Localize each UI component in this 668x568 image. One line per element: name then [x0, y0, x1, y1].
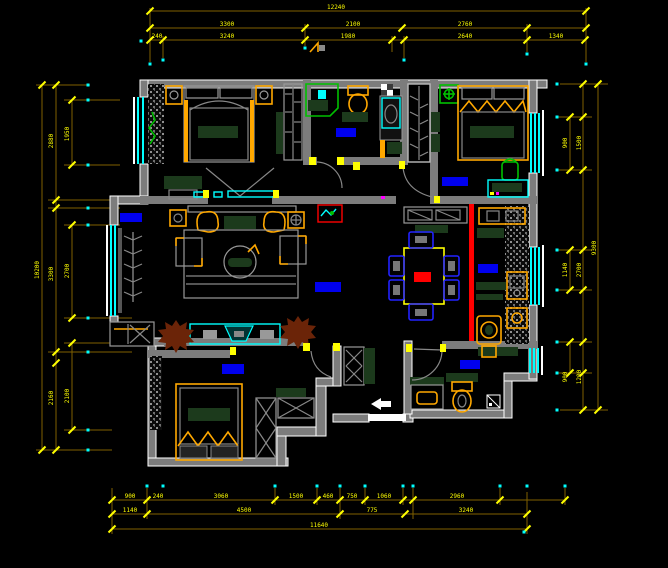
bay-window-living — [106, 225, 122, 316]
door-jamb-marker — [203, 190, 209, 198]
room-bathroom-bottom — [406, 344, 518, 412]
section-marker-icon — [310, 43, 325, 52]
feature-wall-red — [469, 204, 474, 341]
room-bathroom-top — [306, 84, 402, 199]
door-jamb-marker — [434, 196, 440, 203]
dim-label: 2960 — [450, 493, 465, 500]
door-jamb-marker — [399, 161, 405, 169]
door-jamb-marker — [406, 344, 412, 352]
dim-label: 4500 — [237, 507, 252, 514]
room-bedroom-top-right — [431, 85, 528, 197]
double-bed — [176, 384, 242, 460]
room-label-marker — [478, 264, 498, 273]
door-jamb-marker — [230, 347, 236, 355]
dim-label: 750 — [347, 493, 358, 500]
room-label-marker — [460, 360, 480, 369]
dim-label: 1140 — [123, 507, 138, 514]
desk-chair — [502, 159, 518, 180]
side-table — [288, 212, 304, 228]
kitchen-cabinet — [476, 294, 503, 300]
aquarium-box — [318, 205, 342, 222]
door-jamb-marker — [303, 343, 310, 351]
sofa-set — [170, 206, 306, 298]
toilet — [452, 382, 472, 412]
dresser — [164, 176, 202, 189]
window-bedroom-tr — [530, 110, 544, 176]
dim-label: 900 — [562, 137, 569, 148]
hall-cabinet — [110, 322, 154, 346]
floor-drain — [487, 395, 500, 408]
dimension-block-bottom: 900 240 3060 1500 460 750 1060 2960 1140… — [109, 485, 569, 535]
dim-label: 2160 — [48, 390, 55, 405]
washbasin — [411, 385, 443, 409]
shower-head — [318, 90, 326, 99]
room-bedroom-top-left — [149, 84, 302, 199]
room-label-marker — [222, 364, 244, 374]
room-label-marker — [442, 177, 468, 186]
dim-label: 1340 — [549, 33, 564, 40]
kitchen-cabinet — [477, 228, 504, 238]
wardrobe — [276, 84, 302, 160]
dim-label: 12240 — [327, 4, 345, 11]
armchair — [176, 238, 202, 266]
window-sill-checker — [381, 84, 393, 96]
dim-label: 775 — [367, 507, 378, 514]
dim-label: 2760 — [458, 21, 473, 28]
dim-label: 900 — [125, 493, 136, 500]
window-kitchen — [530, 245, 544, 307]
closet-shelf — [431, 112, 440, 132]
dimension-block-left: 1950 2700 2100 2880 3300 2160 10200 — [34, 82, 132, 454]
dim-label: 1980 — [341, 33, 356, 40]
closet-shelf — [431, 134, 440, 152]
door-jamb-marker — [333, 343, 340, 351]
door-jamb-marker — [440, 344, 446, 352]
dim-label: 3240 — [459, 507, 474, 514]
dim-label: 2100 — [346, 21, 361, 28]
door-jamb-marker — [353, 162, 360, 170]
dim-label: 1140 — [562, 262, 569, 277]
side-table — [170, 210, 186, 226]
kitchen-cabinet — [476, 282, 506, 290]
room-living — [110, 205, 342, 353]
dim-label: 240 — [152, 33, 163, 40]
dim-label: 2700 — [64, 263, 71, 278]
dim-label: 3300 — [220, 21, 235, 28]
washbasin-cabinet — [380, 96, 402, 199]
dim-label: 2880 — [48, 133, 55, 148]
dim-label: 9300 — [591, 240, 598, 255]
door-jamb-marker — [337, 157, 344, 165]
dim-label: 1060 — [377, 493, 392, 500]
dim-label: 1500 — [576, 135, 583, 150]
dim-label: 1500 — [289, 493, 304, 500]
shoe-cabinet — [344, 347, 375, 385]
hall-closet — [408, 84, 430, 162]
potted-plant — [158, 320, 194, 353]
dim-label: 3300 — [48, 266, 55, 281]
armchair — [280, 236, 306, 264]
desk — [488, 180, 528, 197]
double-bed — [184, 86, 254, 162]
entry-arrow-icon — [371, 398, 391, 410]
dim-label: 460 — [323, 493, 334, 500]
dim-label: 2700 — [576, 262, 583, 277]
dim-label: 3240 — [220, 33, 235, 40]
dim-label: 2100 — [64, 388, 71, 403]
entry-area — [344, 347, 406, 421]
entry-threshold — [368, 414, 406, 421]
dim-label: 900 — [562, 371, 569, 382]
toilet — [348, 86, 368, 114]
laundry-machine — [477, 316, 501, 344]
folding-door — [194, 168, 279, 198]
double-bed — [458, 86, 528, 160]
dining-table — [404, 248, 444, 304]
door-jamb-marker — [309, 157, 316, 165]
curtain-plant-symbol — [124, 232, 142, 302]
window-bedroom-tl — [133, 97, 144, 164]
door-jamb-marker — [273, 190, 279, 198]
dim-label: 1200 — [576, 369, 583, 384]
dimension-block-top: 12240 3300 2100 2760 240 3240 1980 2640 … — [140, 4, 590, 66]
cad-drawing-canvas[interactable]: 12240 3300 2100 2760 240 3240 1980 2640 … — [0, 0, 668, 568]
nightstand — [166, 86, 182, 104]
room-label-marker — [120, 213, 142, 222]
dim-label: 3060 — [214, 493, 229, 500]
dim-label: 2640 — [458, 33, 473, 40]
bath-cabinet — [342, 112, 368, 122]
dim-label: 11640 — [310, 522, 328, 529]
dim-label: 240 — [153, 493, 164, 500]
room-label-marker — [315, 282, 341, 292]
bedroom-door — [230, 343, 340, 377]
dim-label: 10200 — [34, 261, 41, 279]
room-label-marker — [336, 128, 356, 137]
nightstand — [256, 86, 272, 104]
dimension-block-right: 900 1140 900 1500 2700 1200 9300 — [556, 81, 609, 414]
sideboard — [404, 207, 467, 233]
dim-label: 1950 — [64, 126, 71, 141]
coffee-table-plant — [224, 245, 259, 278]
floor-plan-svg: 12240 3300 2100 2760 240 3240 1980 2640 … — [0, 0, 668, 568]
room-bedroom-bottom-left — [176, 343, 340, 460]
